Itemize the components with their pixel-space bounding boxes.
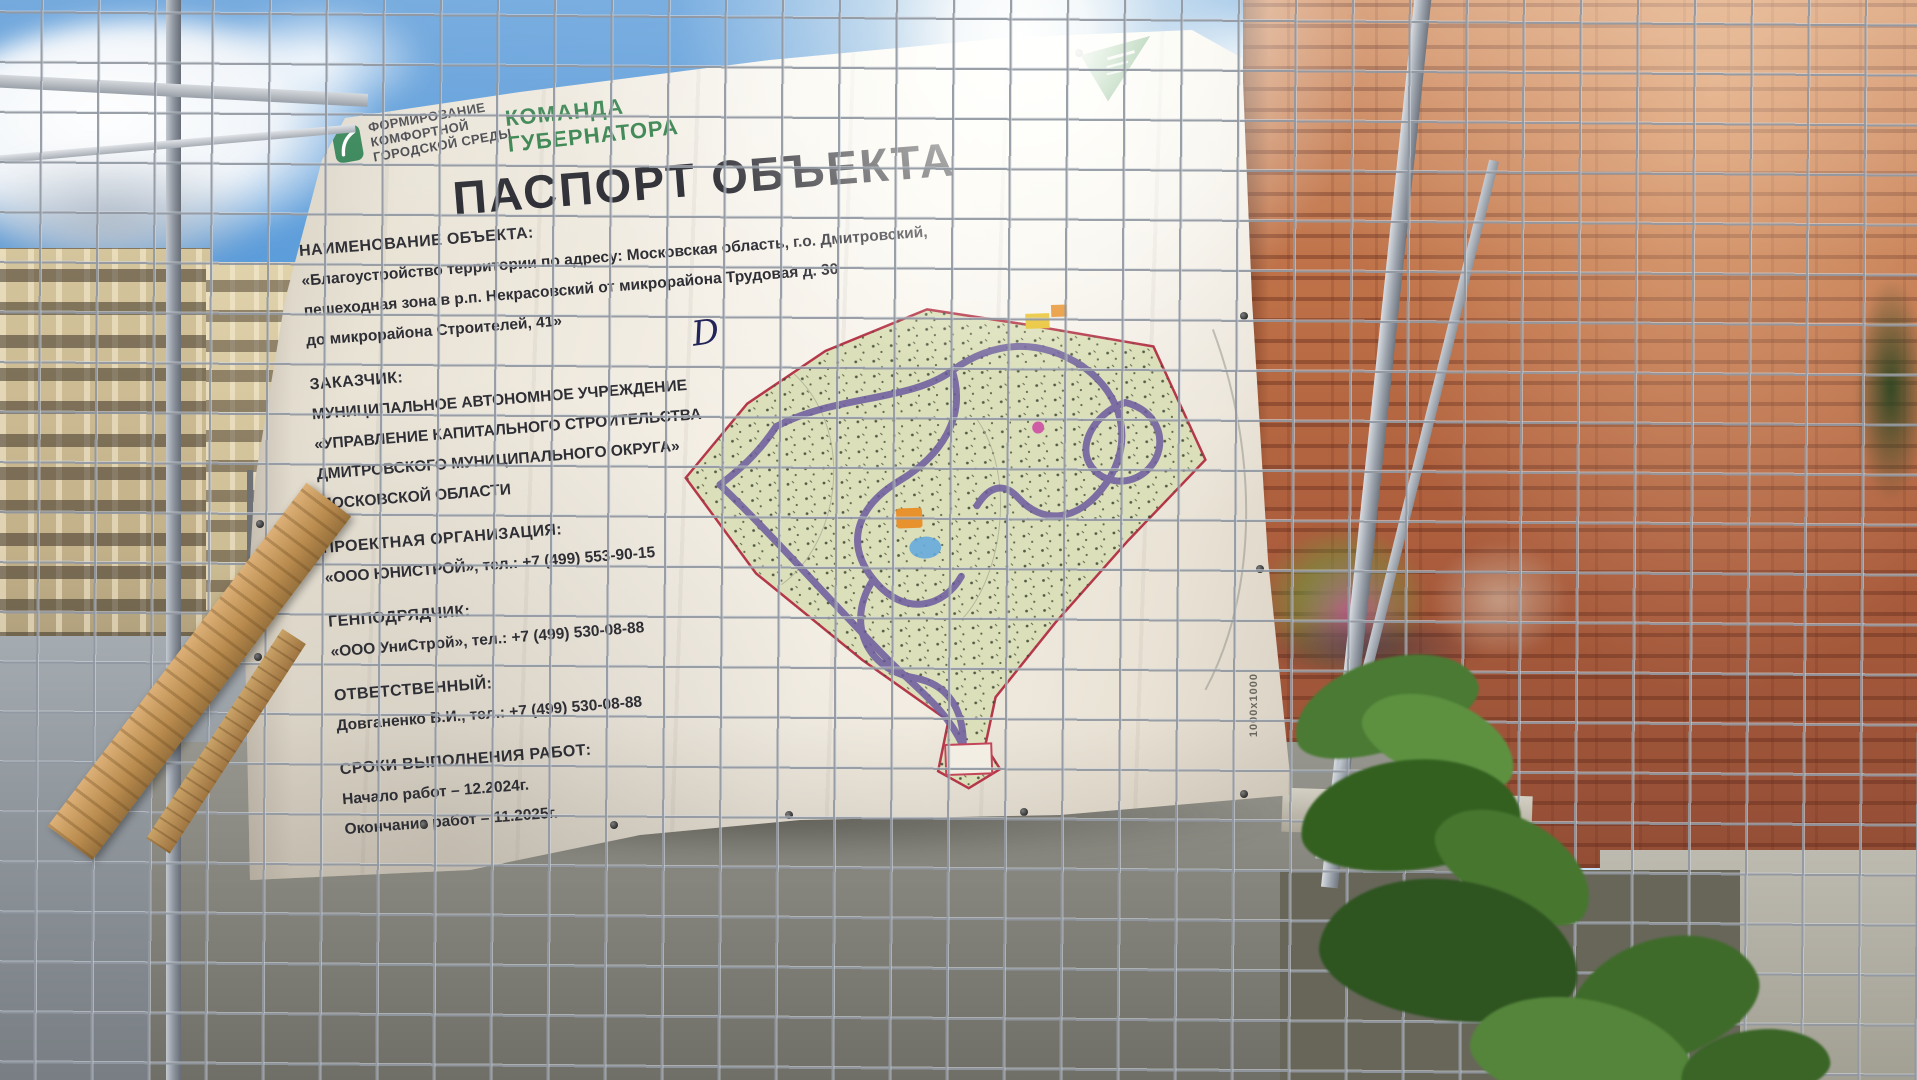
grommet [785, 811, 793, 819]
governor-team-logo: КОМАНДА ГУБЕРНАТОРА [504, 88, 680, 158]
grommet [256, 520, 264, 528]
grommet [1240, 790, 1248, 798]
graffiti-light [1430, 540, 1570, 660]
photo-scene: ФОРМИРОВАНИЕ КОМФОРТНОЙ ГОРОДСКОЙ СРЕДЫ … [0, 0, 1917, 1080]
site-plan-map [651, 267, 1289, 808]
grommet [1240, 312, 1248, 320]
banner-size-marking: 1000x1000 [1248, 673, 1260, 737]
construction-passport-banner: ФОРМИРОВАНИЕ КОМФОРТНОЙ ГОРОДСКОЙ СРЕДЫ … [240, 25, 1300, 885]
tree [1856, 280, 1917, 500]
fence-post [166, 0, 181, 1080]
grommet [585, 35, 593, 43]
grommet [1256, 565, 1264, 573]
grommet [420, 821, 428, 829]
handwritten-annotation: D [689, 311, 722, 354]
grommet [1020, 808, 1028, 816]
grommet [610, 821, 618, 829]
grommet [1075, 49, 1083, 57]
national-projects-logo-icon [1077, 35, 1165, 113]
